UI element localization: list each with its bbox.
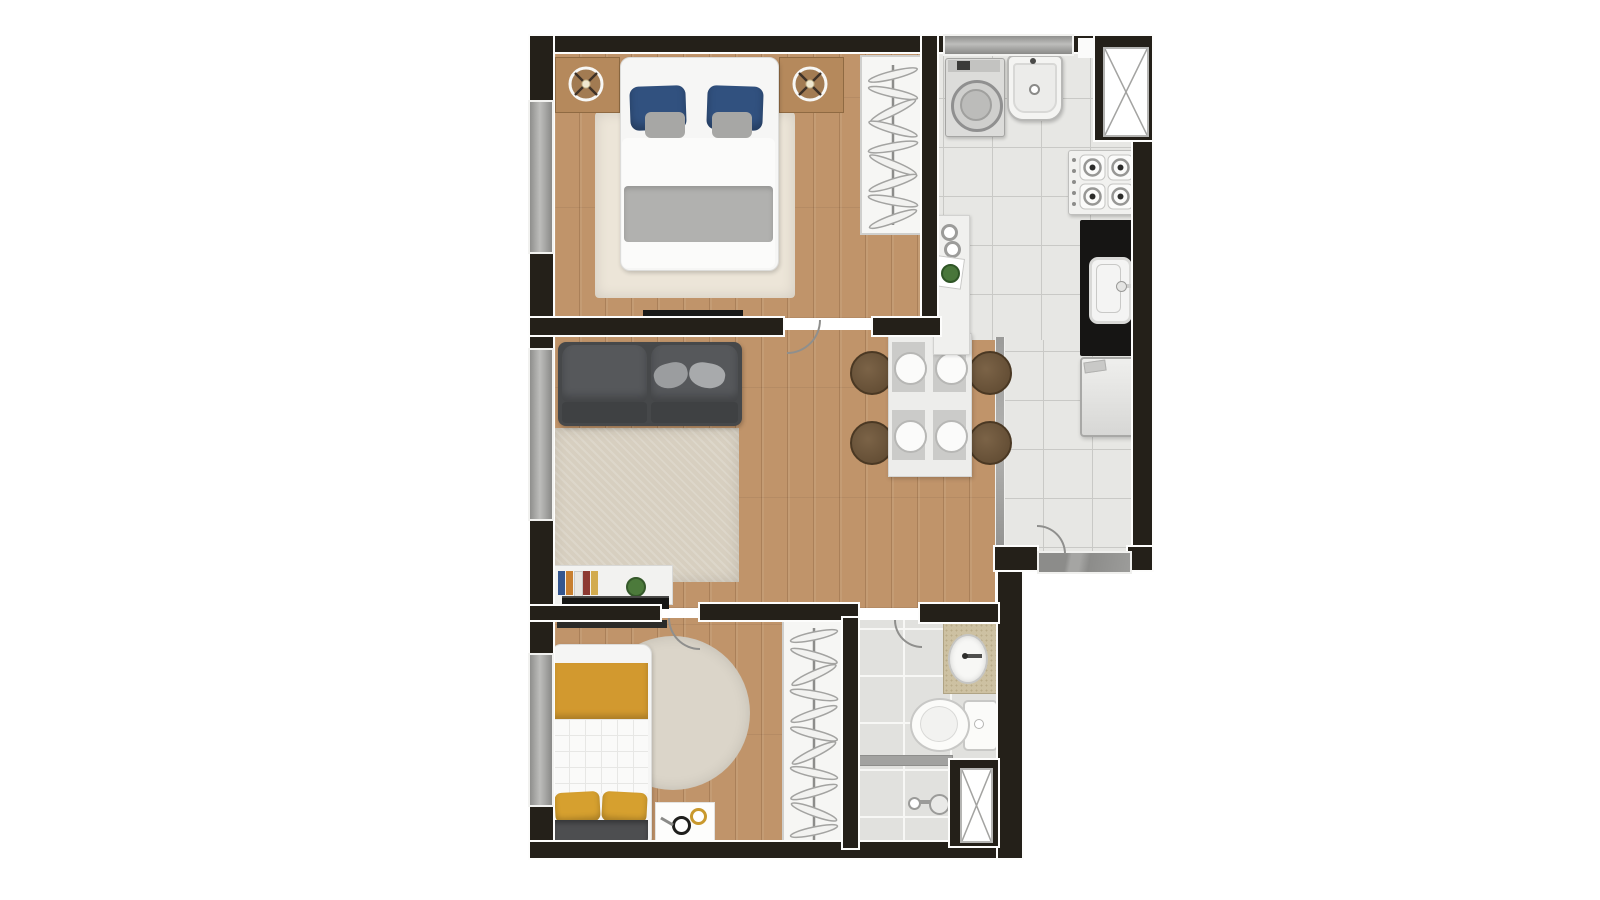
plate-2 [935,352,968,385]
tv-stand-book-3 [574,571,583,597]
shower-valve-icon [908,797,921,810]
tv-stand-plant-icon [626,577,646,597]
plate-3 [894,420,927,453]
sofa-seat-left [562,402,647,423]
counter-jar-1 [941,224,958,241]
laundry-tank-faucet-icon [1030,58,1036,64]
living-window [528,348,554,521]
wall-right-lower [998,547,1022,858]
closet2-hangers-icon [784,620,845,850]
dining-chair-3 [968,351,1012,395]
tv-stand-book-5 [591,571,598,595]
tv-stand-book-1 [558,571,565,595]
toilet-flush-button [974,719,984,729]
bedroom2-closet [782,618,847,852]
cooktop [1068,150,1136,215]
bed2-mustard-blanket [553,663,648,719]
plate-1 [894,352,927,385]
wall-bedroom1-south-right [873,318,940,335]
vanity-drain-icon [962,653,968,659]
plate-4 [935,420,968,453]
washing-machine-knob [957,61,970,70]
counter-dish-greens-icon [941,264,960,283]
service-shaft-top-icon [1103,47,1149,137]
bed1-gray-blanket [624,186,773,242]
dining-chair-4 [968,421,1012,465]
mat-bowl-yellow-icon [690,808,707,825]
living-rug [553,428,739,582]
washing-machine-panel [948,60,1000,72]
wall-living-bedroom2 [530,606,660,620]
bed1-pillow-gray-left [645,112,685,138]
table-lamp-right-icon [791,65,829,103]
wall-niche [1078,38,1095,58]
wall-bedroom1-south-left [530,318,783,335]
wall-closet2-bathroom [843,618,858,848]
bedroom2-wall-shelf [557,620,667,628]
washing-machine-drum-inner [960,89,992,121]
bed2-pillow-yellow-left [554,791,601,823]
sofa-back-cushion-left [562,345,647,402]
toilet-bowl-inner [920,706,958,742]
wall-kitchen-south [995,547,1037,570]
kitchen-window [943,34,1074,56]
table-lamp-left-icon [567,65,605,103]
wardrobe-hangers-icon [862,57,924,233]
shower-glass-divider [858,755,953,766]
tv-stand-book-2 [566,571,573,595]
sofa-seat-right [651,402,738,423]
wall-hall-closet [700,604,858,620]
vanity-faucet-icon [966,654,982,658]
bedroom1-wardrobe [860,55,926,235]
tv-stand-book-4 [583,571,590,595]
shower-head-icon [929,794,950,815]
bedroom2-window [528,653,554,807]
floor-plan-canvas [0,0,1600,900]
bed1-pillow-gray-right [712,112,752,138]
kitchen-faucet-knob-icon [1116,281,1127,292]
laundry-tank-drain-icon [1029,84,1040,95]
bed2-quilt [553,719,648,793]
vanity-basin [948,634,988,684]
bedroom1-window [528,100,554,254]
bed2-pillow-yellow-right [601,791,648,823]
wall-bedroom1-kitchen [922,36,937,335]
mat-bowl-black-icon [672,816,691,835]
entry-threshold [1037,551,1132,574]
wall-bathroom-north [920,604,998,622]
wall-bottom [530,842,1022,858]
service-shaft-bathroom-icon [960,768,993,843]
